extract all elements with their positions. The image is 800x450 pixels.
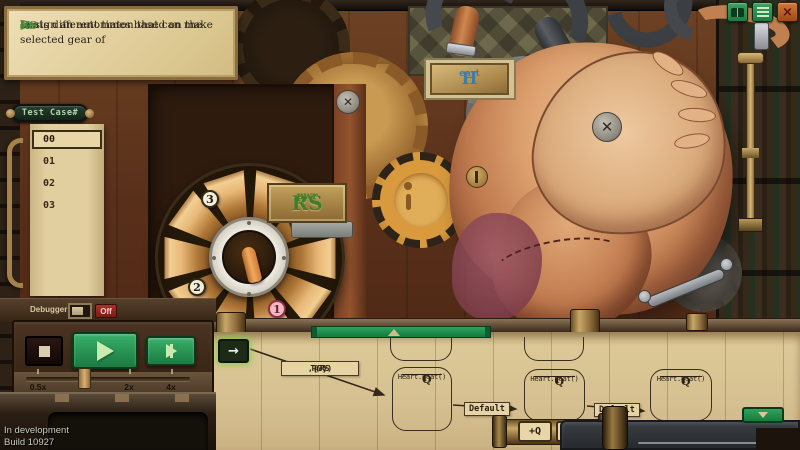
corner-machinery xyxy=(756,428,800,450)
test-case-row[interactable]: 03 xyxy=(43,200,87,215)
start-state-arrow-button[interactable]: → xyxy=(218,339,249,363)
test-case-row-selected[interactable]: 00 xyxy=(32,130,102,149)
machine-foot xyxy=(55,394,69,402)
brass-joint xyxy=(602,406,628,450)
node-action: Heart.Beat() xyxy=(657,375,705,383)
test-case-row[interactable]: 02 xyxy=(43,178,87,193)
speed-slider-handle[interactable] xyxy=(78,368,91,389)
close-button[interactable]: × xyxy=(777,2,798,22)
skip-icon-bar xyxy=(170,344,173,358)
build-status-text: In development xyxy=(4,425,69,436)
debugger-label: Debugger xyxy=(30,305,67,314)
debugger-toggle[interactable] xyxy=(68,303,92,319)
machinery-opening xyxy=(48,412,208,450)
state-node-q1[interactable]: Q1 Heart.Beat() xyxy=(392,367,452,431)
slider-tick xyxy=(37,369,39,374)
build-number-text: Build 10927 xyxy=(4,437,54,448)
menu-button[interactable] xyxy=(752,2,773,22)
speed-label: 2x xyxy=(117,382,141,392)
chevron-down-icon xyxy=(758,412,768,418)
test-case-row[interactable]: 01 xyxy=(43,156,87,171)
machine-foot xyxy=(175,394,189,402)
play-button[interactable] xyxy=(72,332,138,369)
debugger-state-badge[interactable]: Off xyxy=(95,304,117,318)
slider-tick xyxy=(129,369,131,374)
state-node-q1[interactable]: Q1 Heart.Beat() xyxy=(650,369,712,421)
speed-label: 0.5x xyxy=(26,382,50,392)
toolbar-end-cap xyxy=(492,415,507,448)
add-state-button[interactable]: +Q xyxy=(518,421,552,442)
objective-text: beats different times based on the selec… xyxy=(20,18,235,48)
offscreen-node-fragment xyxy=(390,337,452,361)
skip-to-end-button[interactable] xyxy=(146,336,196,366)
menu-icon xyxy=(757,7,769,17)
node-action: Heart.Beat() xyxy=(398,373,446,381)
objective-panel: Design an automaton that can make Heart … xyxy=(4,6,238,80)
offscreen-node-fragment xyxy=(524,337,584,361)
state-node-q1[interactable]: Q1 Heart.Beat() xyxy=(524,369,585,421)
tray-collapse-button[interactable] xyxy=(742,407,784,423)
speed-slider-track[interactable] xyxy=(26,377,190,381)
stop-icon xyxy=(39,346,50,357)
slider-tick xyxy=(171,369,173,374)
play-icon xyxy=(97,341,114,361)
game-screen: ✕ ✕ xyxy=(0,0,800,450)
machine-foot xyxy=(115,394,129,402)
edge-label-default[interactable]: Default xyxy=(464,402,510,416)
toggle-knob xyxy=(72,307,83,315)
transition-condition-label[interactable]: T(RSpwr,{3}) xyxy=(281,361,359,376)
node-action: Heart.Beat() xyxy=(530,375,578,383)
book-icon xyxy=(731,8,744,17)
speed-label: 4x xyxy=(159,382,183,392)
stop-button[interactable] xyxy=(25,336,63,366)
manual-button[interactable] xyxy=(727,2,748,22)
brass-handle xyxy=(7,138,23,288)
close-icon: × xyxy=(782,5,793,20)
rs-keyword-suffix: pwr xyxy=(20,18,36,33)
test-case-header: Test Case# xyxy=(12,104,88,122)
transition-suffix: ,{3}) xyxy=(308,364,332,373)
